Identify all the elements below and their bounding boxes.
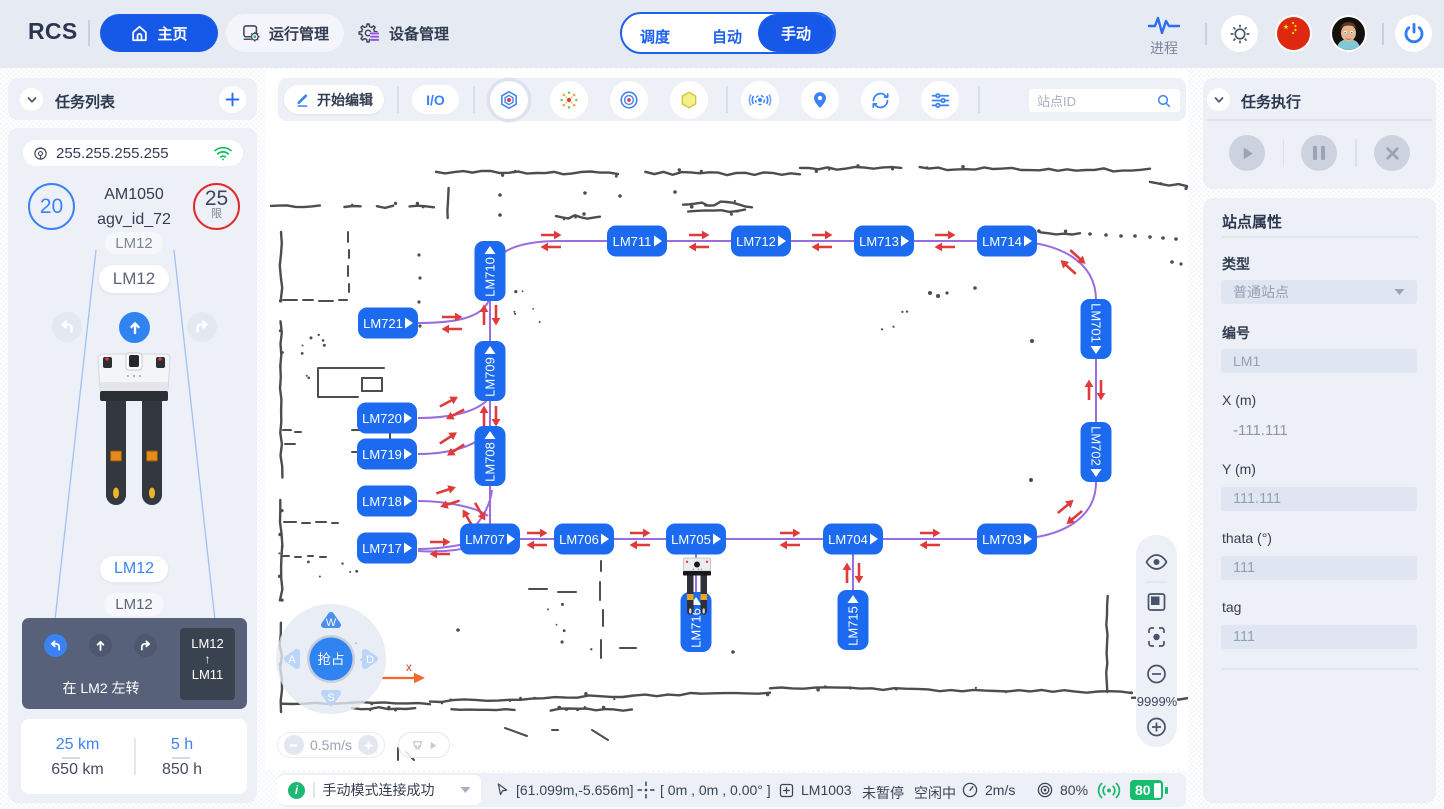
svg-text:LM704: LM704 (828, 532, 868, 547)
svg-text:LM708: LM708 (483, 442, 498, 482)
svg-text:LM706: LM706 (559, 532, 599, 547)
svg-text:LM714: LM714 (982, 234, 1022, 249)
svg-text:LM719: LM719 (362, 447, 402, 462)
svg-text:LM717: LM717 (362, 541, 402, 556)
svg-text:抢占: 抢占 (318, 651, 345, 667)
svg-text:S: S (327, 692, 334, 704)
svg-text:LM713: LM713 (859, 234, 899, 249)
svg-text:D: D (366, 654, 374, 666)
svg-text:W: W (326, 617, 337, 629)
svg-text:LM703: LM703 (982, 532, 1022, 547)
svg-text:LM705: LM705 (671, 532, 711, 547)
svg-text:LM720: LM720 (362, 411, 402, 426)
svg-text:LM707: LM707 (465, 532, 505, 547)
svg-text:LM712: LM712 (736, 234, 776, 249)
svg-text:LM702: LM702 (1089, 426, 1104, 466)
svg-text:LM718: LM718 (362, 494, 402, 509)
svg-text:LM701: LM701 (1089, 303, 1104, 343)
svg-text:LM715: LM715 (846, 606, 861, 646)
svg-text:LM711: LM711 (613, 234, 652, 249)
svg-text:LM710: LM710 (483, 257, 498, 297)
svg-text:x: x (406, 662, 412, 674)
svg-text:LM709: LM709 (483, 357, 498, 397)
svg-text:LM721: LM721 (363, 316, 403, 331)
svg-text:A: A (288, 654, 296, 666)
